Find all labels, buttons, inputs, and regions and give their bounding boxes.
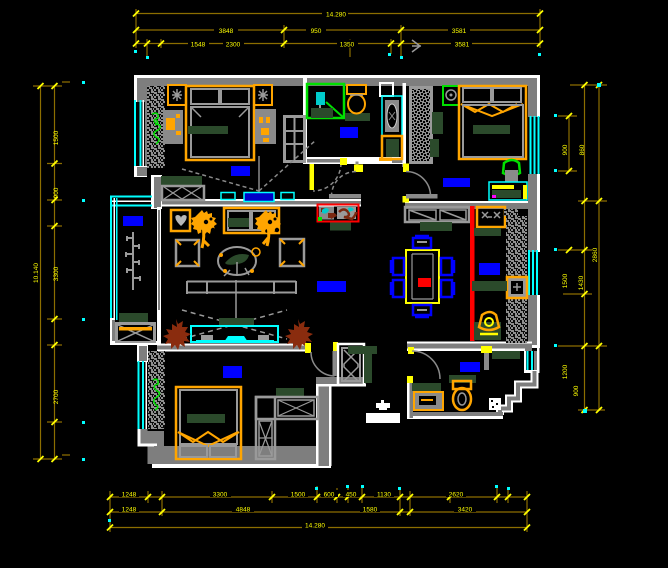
svg-text:1350: 1350 (340, 42, 355, 49)
svg-text:2300: 2300 (226, 42, 241, 49)
svg-text:3848: 3848 (219, 28, 234, 35)
svg-text:14.280: 14.280 (326, 12, 346, 19)
svg-text:450: 450 (346, 492, 357, 499)
svg-text:1248: 1248 (122, 507, 137, 514)
svg-text:1580: 1580 (363, 507, 378, 514)
svg-text:2860: 2860 (592, 247, 599, 262)
svg-text:1500: 1500 (562, 273, 569, 288)
svg-text:600: 600 (324, 492, 335, 499)
svg-text:860: 860 (579, 144, 586, 155)
svg-text:900: 900 (562, 144, 569, 155)
svg-text:900: 900 (573, 385, 580, 396)
svg-text:900: 900 (53, 187, 60, 198)
svg-text:10.140: 10.140 (33, 263, 40, 283)
svg-text:4848: 4848 (236, 507, 251, 514)
svg-text:2700: 2700 (53, 389, 60, 404)
svg-text:1500: 1500 (291, 492, 306, 499)
svg-text:1248: 1248 (122, 492, 137, 499)
svg-text:1548: 1548 (191, 42, 206, 49)
svg-text:3300: 3300 (213, 492, 228, 499)
svg-text:950: 950 (311, 28, 322, 35)
svg-text:1200: 1200 (562, 364, 569, 379)
svg-text:3581: 3581 (455, 42, 470, 49)
svg-text:3581: 3581 (452, 28, 467, 35)
svg-text:14.280: 14.280 (305, 523, 325, 530)
svg-text:1130: 1130 (377, 492, 391, 499)
svg-text:1430: 1430 (578, 275, 585, 290)
svg-text:1500: 1500 (53, 130, 60, 145)
svg-text:3420: 3420 (458, 507, 473, 514)
svg-text:2620: 2620 (449, 492, 464, 499)
svg-text:3300: 3300 (53, 266, 60, 281)
